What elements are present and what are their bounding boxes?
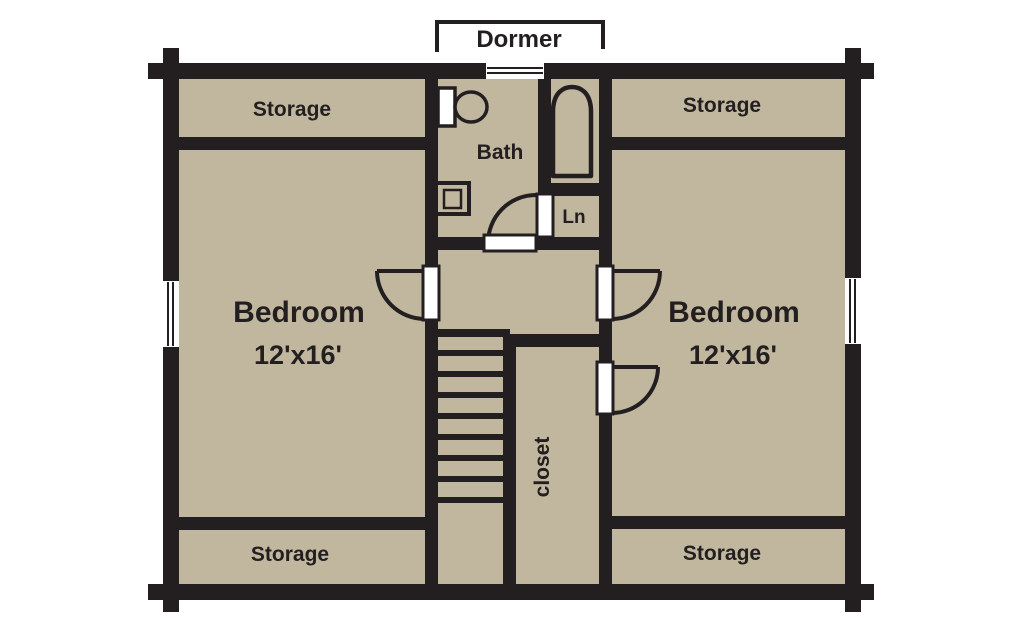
sink-basin: [444, 190, 461, 208]
wall-bath-bottom-left: [438, 237, 483, 250]
door-leaf: [597, 362, 613, 414]
wall-storage-bottom-right: [612, 516, 845, 529]
storage-bottom-left-label: Storage: [251, 543, 329, 566]
wall-tub-left: [538, 79, 551, 196]
wall-stairwell-top: [434, 329, 510, 337]
door-leaf: [537, 194, 553, 237]
door-linen: [537, 194, 553, 237]
bedroom-right-name: Bedroom: [668, 296, 800, 329]
stair-tread: [438, 476, 503, 482]
wall-right-vertical-lower: [599, 413, 612, 584]
storage-bottom-right-label: Storage: [683, 542, 761, 565]
bedroom-left-size: 12'x16': [254, 340, 342, 370]
linen-label: Ln: [562, 207, 585, 228]
bath-label: Bath: [477, 141, 524, 164]
wall-storage-top-left: [179, 137, 438, 150]
wall-left-vertical-upper: [425, 79, 438, 267]
dormer-window: [486, 63, 544, 79]
wall-storage-bottom-left: [179, 517, 425, 530]
bathtub: [553, 87, 591, 176]
floor-plan: Dormer Storage Storage Storage Storage B…: [0, 0, 1024, 640]
wall-closet-top: [503, 334, 612, 347]
storage-top-right-label: Storage: [683, 94, 761, 117]
toilet-bowl: [455, 92, 487, 122]
door-leaf: [597, 266, 613, 320]
exterior-wall-bottom: [148, 584, 874, 600]
left-window: [163, 281, 179, 347]
stair-tread: [438, 371, 503, 377]
stair-tread: [438, 455, 503, 461]
bedroom-right-size: 12'x16': [689, 340, 777, 370]
stair-tread: [438, 497, 503, 503]
wall-bath-bottom-right: [537, 237, 612, 250]
stair-tread: [438, 413, 503, 419]
wall-stairwell-right: [503, 334, 516, 584]
right-window: [845, 278, 861, 344]
floor-plan-drawing: Dormer Storage Storage Storage Storage B…: [0, 0, 1024, 640]
toilet-tank: [438, 88, 455, 126]
wall-storage-top-right: [599, 137, 845, 150]
wall-left-vertical-lower: [425, 320, 438, 584]
door-leaf: [484, 235, 536, 251]
stair-tread: [438, 392, 503, 398]
door-leaf: [423, 266, 439, 320]
bedroom-left-name: Bedroom: [233, 296, 365, 329]
closet-label: closet: [531, 437, 554, 498]
stair-tread: [438, 350, 503, 356]
dormer-label: Dormer: [476, 26, 561, 53]
storage-top-left-label: Storage: [253, 98, 331, 121]
stair-tread: [438, 434, 503, 440]
